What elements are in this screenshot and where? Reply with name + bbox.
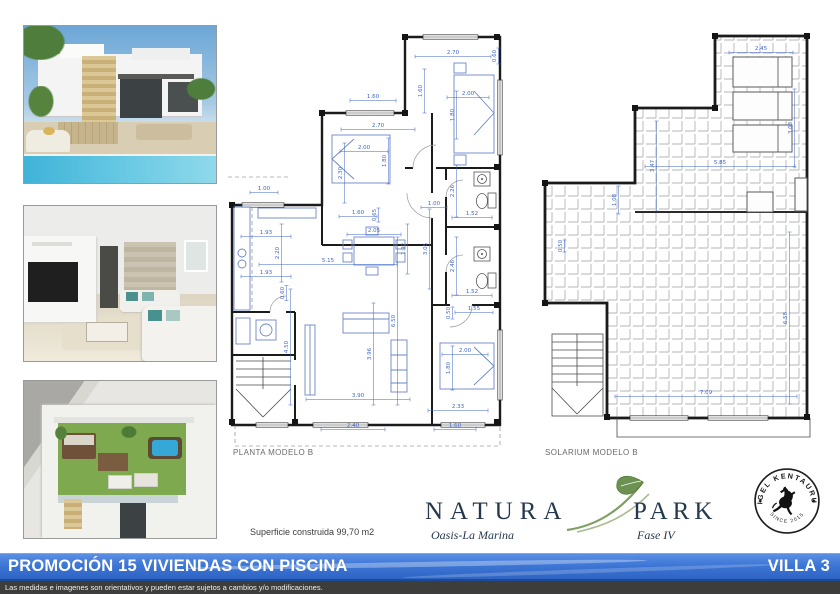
ottoman: [134, 473, 158, 487]
dimension-label: 3.90: [352, 393, 365, 399]
dimension-label: 0.60: [280, 286, 286, 299]
dimension-label: 1.52: [466, 211, 478, 217]
dimension-label: 0.50: [446, 306, 452, 319]
window: [242, 203, 284, 207]
porch-edge: [617, 418, 810, 437]
brand-subtitle-right: Fase IV: [637, 528, 675, 543]
shelf: [32, 242, 72, 246]
teal-cushion: [126, 292, 138, 301]
dimension-label: 0.50: [558, 239, 564, 252]
dimension-label: 2.46: [450, 259, 456, 272]
stone-accent-wall: [124, 242, 176, 290]
promotion-title: PROMOCIÓN 15 VIVIENDAS CON PISCINA: [8, 554, 348, 579]
dimension-label: 5.15: [322, 258, 335, 264]
floor-plan-planta: 2.700.601.602.001.801.602.702.001.802.30…: [228, 25, 528, 455]
dimension-label: 1.52: [466, 289, 478, 295]
solarium-caption: SOLARIUM MODELO B: [545, 448, 638, 457]
dimension-label: 0.60: [492, 49, 498, 62]
dimension-label: 1.00: [258, 186, 271, 192]
planter-bush: [120, 425, 138, 439]
rigel-kentaurus-stamp: RIGEL KENTAURUS SINCE 2015: [752, 466, 822, 536]
bed-bedroom-1: [454, 63, 494, 165]
hall-doorway: [100, 246, 118, 308]
dimension-label: 1.60: [418, 84, 424, 97]
dimension-label: 1.08: [612, 193, 618, 206]
window: [441, 423, 485, 427]
low-table: [108, 475, 132, 489]
door-arcs: [270, 145, 472, 327]
stone-pillar-facade: [64, 499, 82, 529]
dimension-label: 1.00: [428, 201, 441, 207]
glass-doors: [120, 78, 162, 118]
dimension-label: 2.40: [347, 423, 360, 429]
brand-word-park: PARK: [633, 498, 717, 526]
dimension-label: 3.47: [650, 159, 656, 172]
window: [346, 111, 394, 115]
window: [256, 423, 288, 427]
terrace-table: [747, 192, 773, 212]
planta-caption: PLANTA MODELO B: [233, 448, 314, 457]
villa-number: VILLA 3: [768, 554, 830, 579]
dimension-label: 2.33: [452, 404, 465, 410]
brand-subtitle-left: Oasis-La Marina: [431, 528, 514, 543]
swimming-pool: [24, 154, 216, 184]
dimension-label: 1.80: [382, 154, 388, 167]
teal-cushion-3: [148, 310, 162, 321]
facade-window: [120, 503, 146, 538]
dimension-label: 1.93: [260, 270, 273, 276]
built-area-text: Superficie construida 99,70 m2: [250, 527, 374, 537]
brand-word-natura: NATURA: [425, 498, 568, 526]
window: [498, 80, 502, 155]
dimension-label: 6.58: [783, 311, 789, 324]
terrace-unit: [795, 178, 807, 211]
awning: [118, 74, 194, 79]
dining-table: [343, 227, 405, 275]
sofa-cushions: [64, 435, 94, 445]
dimension-label: 3.96: [367, 347, 373, 360]
window: [313, 423, 368, 427]
dimension-label: 2.20: [275, 246, 281, 259]
dimension-label: 1.92: [401, 243, 407, 255]
villa-upper-floor: [132, 48, 190, 60]
dimension-label: 2.26: [450, 184, 456, 197]
planter-bush-2: [54, 425, 68, 441]
dimension-label: 2.00: [462, 91, 475, 97]
dimension-label: 2.70: [372, 123, 385, 129]
dimension-label: 2.45: [755, 46, 768, 52]
dimension-label: 3.03: [788, 121, 794, 134]
plant-left: [26, 86, 56, 120]
window: [423, 35, 478, 39]
brochure-page: 2.700.601.602.001.801.602.702.001.802.30…: [0, 0, 840, 594]
palm-tree-right: [184, 76, 217, 102]
title-bar: PROMOCIÓN 15 VIVIENDAS CON PISCINA VILLA…: [0, 553, 840, 581]
dimension-label: 2.00: [358, 145, 371, 151]
bathroom-2-fixtures: [474, 247, 496, 289]
window: [498, 330, 502, 400]
dimension-label: 1.93: [260, 230, 273, 236]
dimension-label: 2.30: [338, 166, 344, 179]
photo-rooftop-solarium: [23, 380, 217, 539]
rear-parapet: [54, 417, 194, 423]
sun-loungers: [733, 57, 792, 152]
floor-plan-solarium: 2.453.035.853.471.080.507.096.58: [540, 28, 820, 453]
cushion-light: [166, 310, 180, 321]
dimension-label: 1.60: [449, 423, 462, 429]
dimension-label: 1.55: [468, 306, 481, 312]
lounge-sofa: [136, 124, 192, 140]
natura-park-logo: NATURA PARK Oasis-La Marina Fase IV: [425, 480, 720, 548]
disclaimer-bar: Las medidas e imagenes son orientativos …: [0, 581, 840, 594]
wall-art: [184, 240, 208, 272]
staircase: [236, 357, 291, 417]
teal-cushion-2: [142, 292, 154, 301]
rattan-bench: [98, 453, 128, 471]
photo-villa-exterior: [23, 25, 217, 184]
dimension-label: 7.09: [700, 390, 713, 396]
jacuzzi-water: [152, 440, 178, 456]
photo-living-room: [23, 205, 217, 362]
coffee-table: [86, 322, 128, 342]
dimension-label: 5.85: [714, 160, 727, 166]
laundry-room: [236, 318, 276, 344]
dimension-label: 2.70: [447, 50, 460, 56]
dimension-label: 1.60: [352, 210, 365, 216]
dimension-label: 6.50: [391, 314, 397, 327]
tv-screen: [28, 262, 78, 302]
dimension-label: 2.05: [368, 228, 381, 234]
dimension-label: 4.50: [284, 340, 290, 353]
dimension-label: 1.60: [367, 94, 380, 100]
dimension-label: 0.65: [372, 208, 378, 221]
dimension-label: 2.00: [459, 348, 472, 354]
dimension-label: 1.80: [450, 108, 456, 121]
dimension-label: 3.05: [423, 242, 429, 255]
solarium-staircase: [552, 334, 603, 416]
bathroom-1-fixtures: [474, 172, 496, 209]
dimension-label: 1.80: [446, 361, 452, 374]
palm-tree-left: [23, 25, 70, 60]
sun-hat: [42, 126, 56, 136]
stone-feature-wall: [82, 56, 116, 128]
